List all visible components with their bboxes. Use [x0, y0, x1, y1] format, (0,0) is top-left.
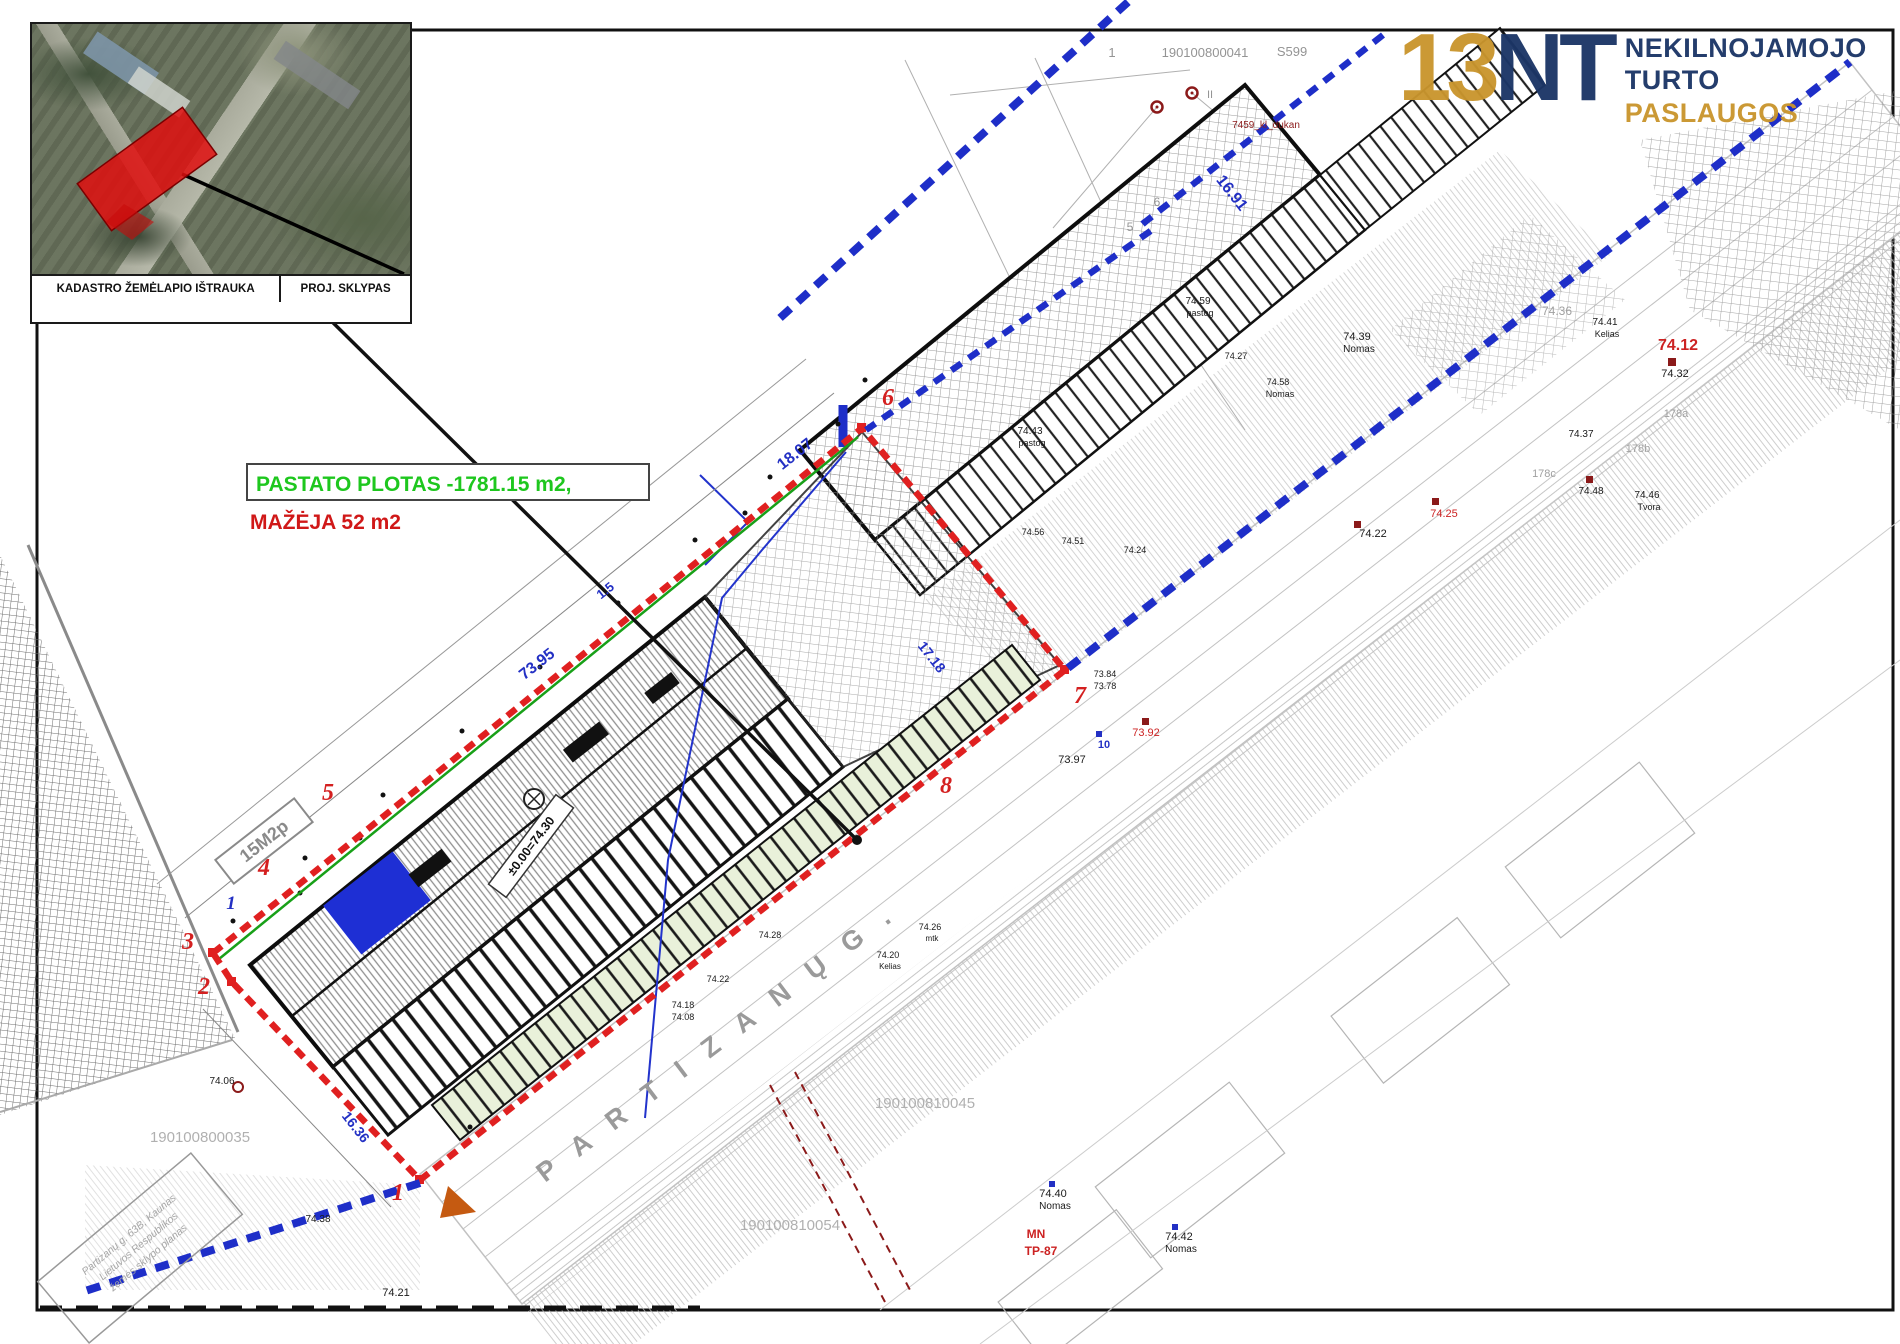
map-label: Nomas	[1266, 389, 1295, 399]
map-label: 74.28	[759, 930, 782, 940]
map-label: mtk	[926, 934, 940, 943]
map-label: 74.20	[877, 950, 900, 960]
map-label: pastog	[1186, 308, 1213, 318]
logo-line3: PASLAUGOS	[1625, 97, 1867, 129]
map-label: 7459_kl_dukan	[1232, 120, 1300, 131]
map-label: 74.43	[1017, 426, 1042, 437]
map-label: Tvora	[1637, 502, 1660, 512]
boundary-point-number: 7	[1074, 683, 1087, 709]
logo-mark: 13NT	[1398, 24, 1613, 112]
area-note-text: PASTATO PLOTAS -1781.15 m2,	[256, 473, 571, 496]
boundary-point-number: 8	[940, 773, 952, 799]
map-label: 74.12	[1658, 337, 1698, 354]
map-label: 74.58	[1267, 377, 1290, 387]
logo-mark-nt: NT	[1495, 14, 1613, 121]
map-label: 190100810054	[740, 1217, 840, 1234]
map-label: 74.32	[1661, 368, 1689, 380]
map-label: 74.59	[1185, 296, 1210, 307]
map-label: 178c	[1532, 468, 1556, 480]
map-label: 190100800035	[150, 1129, 250, 1146]
map-label: 1	[1108, 45, 1115, 60]
map-label: 74.38	[305, 1214, 330, 1225]
map-label: II	[1207, 89, 1213, 101]
map-label: Kelias	[879, 962, 901, 971]
map-label: 74.41	[1592, 317, 1617, 328]
map-label: Nomas	[1343, 344, 1375, 355]
cadastral-plan-page: ±0.00=74.30 15M2p Partizanų g. 63B, Kaun…	[0, 0, 1900, 1344]
boundary-point-number: 1	[392, 1180, 404, 1206]
highlighted-parcel	[77, 107, 216, 230]
map-label: 73.97	[1058, 754, 1086, 766]
logo-mark-13: 13	[1398, 14, 1495, 121]
map-label: 190100810045	[875, 1095, 975, 1112]
map-label: 74.39	[1343, 331, 1371, 343]
map-label: MN	[1027, 1227, 1046, 1241]
map-label: 73.92	[1132, 727, 1160, 739]
map-label: 74.24	[1124, 545, 1147, 555]
map-label: 74.48	[1578, 486, 1603, 497]
map-label: 178a	[1664, 408, 1689, 420]
inset-label-left: KADASTRO ŽEMĖLAPIO IŠTRAUKA	[32, 276, 281, 302]
map-label: 74.36	[1542, 304, 1572, 318]
boundary-point-number: 3	[181, 929, 194, 955]
map-label: 74.21	[382, 1287, 410, 1299]
map-label: 74.26	[919, 922, 942, 932]
decrease-note-text: MAŽĖJA 52 m2	[250, 510, 401, 534]
map-label: 74.56	[1022, 527, 1045, 537]
satellite-image	[32, 24, 410, 274]
map-label: 10	[1098, 739, 1110, 751]
map-label: 74.27	[1225, 351, 1248, 361]
boundary-point-number: 4	[257, 855, 270, 881]
map-label: S599	[1277, 44, 1307, 59]
map-label: Nomas	[1039, 1201, 1071, 1212]
map-label: TP-87	[1025, 1244, 1058, 1258]
boundary-point-number: 1	[226, 893, 236, 914]
map-label: 74.06	[209, 1076, 234, 1087]
map-label: 74.51	[1062, 536, 1085, 546]
map-label: pastog	[1018, 438, 1045, 448]
map-label: 6	[1154, 195, 1161, 209]
map-label: 74.42	[1165, 1231, 1193, 1243]
map-label: 5	[1127, 220, 1134, 234]
map-label: Kelias	[1595, 329, 1620, 339]
crosshatch-wedge	[0, 555, 235, 1115]
area-note: PASTATO PLOTAS -1781.15 m2, MAŽĖJA 52 m2	[247, 464, 649, 534]
map-label: 73.78	[1094, 681, 1117, 691]
map-label: 74.22	[707, 974, 730, 984]
map-label: 74.18	[672, 1000, 695, 1010]
map-label: 74.37	[1568, 429, 1593, 440]
dimension-label: 16.36	[339, 1108, 373, 1146]
map-label: 74.25	[1430, 508, 1458, 520]
boundary-point-number: 6	[882, 385, 894, 411]
map-label: 74.46	[1634, 490, 1659, 501]
logo-line1: NEKILNOJAMOJO	[1625, 32, 1867, 64]
inset-label-right: PROJ. SKLYPAS	[281, 276, 410, 302]
logo-line2: TURTO	[1625, 64, 1867, 96]
callout-end-dot	[852, 835, 862, 845]
boundary-point-number: 2	[197, 974, 210, 1000]
company-logo: 13NT NEKILNOJAMOJO TURTO PASLAUGOS	[1398, 24, 1892, 142]
map-label: Nomas	[1165, 1244, 1197, 1255]
map-label: 74.08	[672, 1012, 695, 1022]
satellite-inset: KADASTRO ŽEMĖLAPIO IŠTRAUKA PROJ. SKLYPA…	[30, 22, 412, 324]
map-label: 190100800041	[1162, 45, 1249, 60]
manhole-icon	[524, 789, 544, 809]
map-label: 73.84	[1094, 669, 1117, 679]
boundary-point-number: 5	[322, 780, 334, 806]
map-label: 74.22	[1359, 528, 1387, 540]
map-label: 74.40	[1039, 1188, 1067, 1200]
map-label: 178b	[1626, 443, 1650, 455]
